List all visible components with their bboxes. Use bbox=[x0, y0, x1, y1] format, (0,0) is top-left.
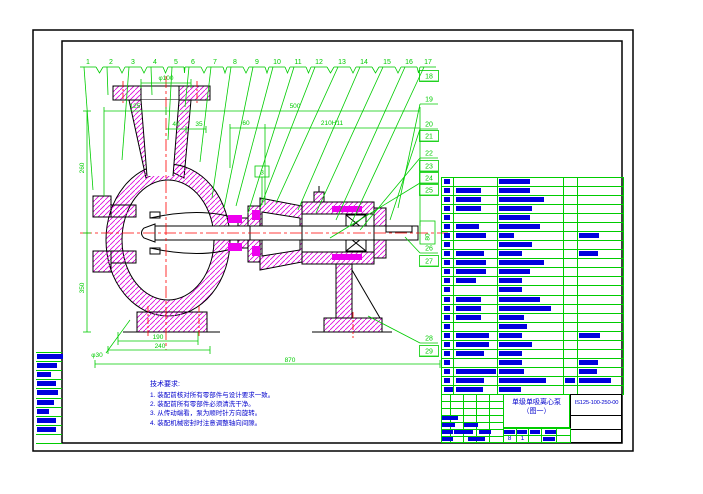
bom-text-bar bbox=[499, 297, 540, 302]
dim-125: 125 bbox=[130, 103, 141, 110]
signature-grid-line bbox=[441, 401, 503, 402]
parts-list-table bbox=[441, 177, 624, 395]
balloon-number: 29 bbox=[425, 349, 433, 356]
balloon-number: 2 bbox=[109, 59, 113, 66]
bom-text-bar bbox=[444, 188, 450, 193]
title-block-line bbox=[570, 429, 622, 430]
bom-text-bar bbox=[499, 188, 530, 193]
pump-cross-section bbox=[93, 85, 418, 332]
signature-grid-line bbox=[441, 408, 503, 409]
bom-text-bar bbox=[456, 351, 484, 356]
strip-row-line bbox=[36, 443, 62, 444]
title-cell-border bbox=[503, 394, 570, 428]
dim-190: 190 bbox=[153, 334, 164, 341]
balloon-leader bbox=[200, 67, 211, 162]
bom-text-bar bbox=[499, 260, 544, 265]
sheet-cell-line bbox=[570, 428, 571, 443]
balloon-number: 12 bbox=[315, 59, 323, 66]
balloon-chain bbox=[395, 67, 401, 73]
bom-text-bar bbox=[499, 387, 521, 392]
tech-req-title: 技术要求: bbox=[150, 379, 340, 389]
bom-text-bar bbox=[499, 315, 524, 320]
bom-row-line bbox=[441, 276, 623, 277]
dim-260: 260 bbox=[79, 162, 86, 173]
balloon-leader bbox=[298, 67, 360, 210]
title-block-line bbox=[570, 415, 622, 416]
balloon-number: 1 bbox=[86, 59, 90, 66]
shaft-keyway bbox=[386, 226, 412, 232]
balloon-chain bbox=[243, 67, 249, 73]
bom-text-bar bbox=[444, 360, 450, 365]
cad-drawing-sheet: φ100 125 500 60 210H11 40 35 260 350 190… bbox=[0, 0, 703, 494]
bom-column-line bbox=[563, 177, 564, 395]
bom-row-line bbox=[441, 240, 623, 241]
bom-text-bar bbox=[499, 351, 522, 356]
bom-text-bar bbox=[579, 369, 597, 374]
dim-350: 350 bbox=[79, 282, 86, 293]
bom-text-bar bbox=[456, 269, 486, 274]
balloon-number: 21 bbox=[425, 134, 433, 141]
balloon-number: 7 bbox=[213, 59, 217, 66]
sheet-cell-text-bar bbox=[543, 437, 555, 441]
bom-column-line bbox=[441, 177, 442, 395]
bom-text-bar bbox=[456, 224, 479, 229]
bom-text-bar bbox=[444, 333, 450, 338]
technical-requirements: 技术要求: 1. 装配前核对所有零部件与设计要求一致。 2. 装配前所有零部件必… bbox=[150, 379, 340, 428]
bom-text-bar bbox=[565, 378, 575, 383]
tech-req-item: 1. 装配前核对所有零部件与设计要求一致。 bbox=[150, 391, 340, 400]
balloon-chain bbox=[327, 67, 334, 73]
balloon-number: 11 bbox=[294, 59, 301, 66]
balloon-chain bbox=[201, 67, 207, 73]
bom-text-bar bbox=[456, 233, 486, 238]
balloon-chain bbox=[223, 67, 227, 73]
balloon-chain bbox=[184, 67, 185, 73]
balloon-chain bbox=[350, 67, 356, 73]
bom-text-bar bbox=[579, 360, 598, 365]
bom-text-bar bbox=[499, 342, 532, 347]
bom-text-bar bbox=[444, 251, 450, 256]
bom-text-bar bbox=[456, 306, 481, 311]
sheet-cell-text-bar bbox=[545, 430, 556, 434]
balloon-number: 10 bbox=[273, 59, 281, 66]
balloon-leader bbox=[336, 67, 405, 220]
bom-text-bar bbox=[456, 251, 484, 256]
bom-row-line bbox=[441, 349, 623, 350]
dim-210h11: 210H11 bbox=[321, 120, 344, 127]
bom-text-bar bbox=[579, 378, 611, 383]
bom-text-bar bbox=[444, 206, 450, 211]
strip-row-line bbox=[36, 416, 62, 417]
balloon-leader bbox=[224, 67, 253, 208]
balloon-number: 16 bbox=[405, 59, 413, 66]
bom-text-bar bbox=[499, 269, 530, 274]
bom-row-line bbox=[441, 313, 623, 314]
bom-text-bar bbox=[456, 378, 484, 383]
bom-text-bar bbox=[444, 287, 450, 292]
balloon-leader bbox=[122, 67, 129, 160]
bom-column-line bbox=[497, 177, 498, 395]
balloon-leader bbox=[390, 129, 420, 220]
signature-text-bar bbox=[468, 437, 485, 441]
bom-row-line bbox=[441, 376, 623, 377]
bom-text-bar bbox=[444, 315, 450, 320]
bom-text-bar bbox=[579, 333, 600, 338]
bom-text-bar bbox=[444, 242, 450, 247]
sheet-number: 1 bbox=[517, 435, 528, 442]
sheet-total: 8 bbox=[504, 435, 515, 442]
balloon-leader bbox=[236, 67, 273, 206]
sheet-cell-text-bar bbox=[504, 430, 515, 434]
bom-text-bar bbox=[456, 333, 489, 338]
bom-text-bar bbox=[456, 260, 486, 265]
strip-row-line bbox=[36, 379, 62, 380]
drawing-number: IS125-100-250-00 bbox=[571, 400, 622, 406]
bom-text-bar bbox=[499, 333, 522, 338]
balloon-chain bbox=[119, 67, 125, 73]
bom-text-bar bbox=[444, 324, 450, 329]
balloon-chain bbox=[285, 67, 290, 73]
bom-row-line bbox=[441, 186, 623, 187]
bom-text-bar bbox=[499, 369, 524, 374]
balloon-leader bbox=[107, 67, 108, 95]
bom-row-line bbox=[441, 213, 623, 214]
bom-text-bar bbox=[499, 287, 522, 292]
balloon-chain bbox=[306, 67, 311, 73]
balloon-leader bbox=[350, 67, 424, 226]
dim-870: 870 bbox=[285, 357, 296, 364]
dim-240: 240 bbox=[155, 343, 166, 350]
sheet-cell-line bbox=[503, 435, 570, 436]
bom-text-bar bbox=[444, 369, 450, 374]
dim-500: 500 bbox=[290, 103, 301, 110]
strip-row-line bbox=[36, 407, 62, 408]
bom-row-line bbox=[441, 358, 623, 359]
bom-column-line bbox=[623, 177, 624, 395]
signature-text-bar bbox=[464, 423, 478, 427]
balloon-number: 19 bbox=[425, 97, 433, 104]
bom-text-bar bbox=[456, 206, 481, 211]
bom-row-line bbox=[441, 285, 623, 286]
strip-text-bar bbox=[37, 418, 56, 423]
strip-text-bar bbox=[37, 372, 51, 377]
dim-80: 80 bbox=[425, 233, 432, 241]
signature-text-bar bbox=[442, 423, 455, 427]
strip-text-bar bbox=[37, 363, 57, 368]
bom-text-bar bbox=[499, 251, 522, 256]
strip-text-bar bbox=[37, 354, 63, 359]
bom-text-bar bbox=[444, 378, 450, 383]
strip-row-line bbox=[36, 370, 62, 371]
bom-text-bar bbox=[456, 342, 489, 347]
bom-text-bar bbox=[499, 324, 527, 329]
bom-text-bar bbox=[444, 179, 450, 184]
bom-row-line bbox=[441, 249, 623, 250]
balloon-number: 15 bbox=[383, 59, 391, 66]
balloon-number: 24 bbox=[425, 176, 433, 183]
bom-row-line bbox=[441, 204, 623, 205]
bom-row-line bbox=[441, 385, 623, 386]
strip-row-line bbox=[36, 398, 62, 399]
bom-text-bar bbox=[456, 188, 481, 193]
balloon-number: 6 bbox=[191, 59, 195, 66]
bom-text-bar bbox=[499, 215, 530, 220]
bom-text-bar bbox=[499, 306, 551, 311]
bom-row-line bbox=[441, 177, 623, 178]
dim-phi30: φ30 bbox=[91, 352, 103, 359]
suction-flange bbox=[93, 251, 111, 272]
balloon-number: 20 bbox=[425, 122, 433, 129]
bom-text-bar bbox=[499, 378, 546, 383]
balloon-chain bbox=[372, 67, 379, 73]
bom-row-line bbox=[441, 304, 623, 305]
bom-text-bar bbox=[499, 206, 532, 211]
signature-text-bar bbox=[454, 430, 473, 434]
balloon-chain bbox=[141, 67, 147, 73]
bom-text-bar bbox=[456, 297, 481, 302]
balloon-leader bbox=[212, 67, 231, 198]
dim-60: 60 bbox=[242, 120, 250, 127]
balloon-number: 23 bbox=[425, 164, 433, 171]
sheet-cell-line bbox=[503, 442, 570, 443]
bom-column-line bbox=[577, 177, 578, 395]
bom-text-bar bbox=[444, 306, 450, 311]
balloon-number: 26 bbox=[425, 246, 433, 253]
suction-flange bbox=[93, 196, 111, 217]
balloon-number: 28 bbox=[425, 336, 433, 343]
balloon-number: 5 bbox=[174, 59, 178, 66]
strip-row-line bbox=[36, 388, 62, 389]
bom-row-line bbox=[441, 231, 623, 232]
balloon-number: 25 bbox=[425, 188, 433, 195]
bom-row-line bbox=[441, 331, 623, 332]
bom-text-bar bbox=[579, 251, 598, 256]
bom-text-bar bbox=[456, 197, 481, 202]
bom-text-bar bbox=[499, 278, 522, 283]
bom-text-bar bbox=[456, 278, 476, 283]
oil-plug bbox=[314, 192, 324, 202]
bom-text-bar bbox=[444, 342, 450, 347]
bom-text-bar bbox=[444, 351, 450, 356]
bom-row-line bbox=[441, 322, 623, 323]
balloon-number: 8 bbox=[233, 59, 237, 66]
bom-text-bar bbox=[456, 387, 483, 392]
bom-row-line bbox=[441, 195, 623, 196]
balloon-number: 27 bbox=[425, 259, 433, 266]
balloon-number: 9 bbox=[255, 59, 259, 66]
bom-text-bar bbox=[579, 233, 599, 238]
dim-35: 35 bbox=[195, 121, 203, 128]
tech-req-item: 2. 装配前所有零部件必须清洗干净。 bbox=[150, 400, 340, 409]
bom-text-bar bbox=[444, 269, 450, 274]
bom-text-bar bbox=[456, 315, 481, 320]
bom-row-line bbox=[441, 340, 623, 341]
dim-40: 40 bbox=[172, 121, 180, 128]
margin-block-table bbox=[36, 352, 62, 443]
bom-row-line bbox=[441, 295, 623, 296]
bom-text-bar bbox=[456, 369, 496, 374]
bom-column-line bbox=[453, 177, 454, 395]
strip-text-bar bbox=[37, 427, 56, 432]
sheet-cell-text-bar bbox=[517, 430, 527, 434]
strip-row-line bbox=[36, 361, 62, 362]
signature-grid-line bbox=[441, 394, 503, 395]
strip-row-line bbox=[36, 425, 62, 426]
bom-text-bar bbox=[499, 233, 514, 238]
balloon-leader bbox=[316, 67, 383, 213]
bom-text-bar bbox=[499, 197, 544, 202]
balloon-leader bbox=[398, 104, 420, 208]
tech-req-item: 4. 装配机械密封时注意调整轴向间隙。 bbox=[150, 419, 340, 428]
title-block: 单级单吸离心泵 （图一） IS125-100-250-00 8 1 bbox=[441, 394, 623, 443]
bom-row-line bbox=[441, 267, 623, 268]
bom-text-bar bbox=[444, 197, 450, 202]
bom-text-bar bbox=[444, 224, 450, 229]
tech-req-item: 3. 从传动端看，泵为顺时针方向旋转。 bbox=[150, 409, 340, 418]
balloon-chain bbox=[96, 67, 103, 73]
sheet-cell-text-bar bbox=[530, 430, 540, 434]
balloon-number: 13 bbox=[338, 59, 346, 66]
balloon-leader bbox=[248, 67, 294, 213]
balloon-number: 3 bbox=[131, 59, 135, 66]
strip-text-bar bbox=[37, 409, 49, 414]
signature-text-bar bbox=[442, 430, 453, 434]
strip-row-line bbox=[36, 352, 62, 353]
bom-row-line bbox=[441, 258, 623, 259]
bom-text-bar bbox=[499, 360, 522, 365]
bom-text-bar bbox=[499, 242, 532, 247]
strip-text-bar bbox=[37, 390, 58, 395]
bom-text-bar bbox=[444, 297, 450, 302]
bom-text-bar bbox=[499, 224, 540, 229]
bom-text-bar bbox=[444, 278, 450, 283]
bom-text-bar bbox=[444, 260, 450, 265]
balloon-chain bbox=[163, 67, 168, 73]
signature-text-bar bbox=[442, 437, 453, 441]
strip-row-line bbox=[36, 434, 62, 435]
bom-text-bar bbox=[444, 215, 450, 220]
bom-row-line bbox=[441, 222, 623, 223]
signature-text-bar bbox=[479, 430, 491, 434]
balloon-number: 18 bbox=[425, 74, 433, 81]
balloon-chain bbox=[265, 67, 269, 73]
casing-foot bbox=[137, 312, 207, 332]
signature-grid-line bbox=[441, 442, 503, 443]
balloon-number: 14 bbox=[360, 59, 368, 66]
balloon-number: 17 bbox=[424, 59, 432, 66]
bom-text-bar bbox=[444, 233, 450, 238]
balloon-number: 4 bbox=[153, 59, 157, 66]
strip-text-bar bbox=[37, 400, 54, 405]
bom-text-bar bbox=[499, 179, 530, 184]
strip-text-bar bbox=[37, 381, 56, 386]
balloon-number: 22 bbox=[425, 151, 433, 158]
bom-row-line bbox=[441, 367, 623, 368]
signature-text-bar bbox=[442, 416, 458, 420]
